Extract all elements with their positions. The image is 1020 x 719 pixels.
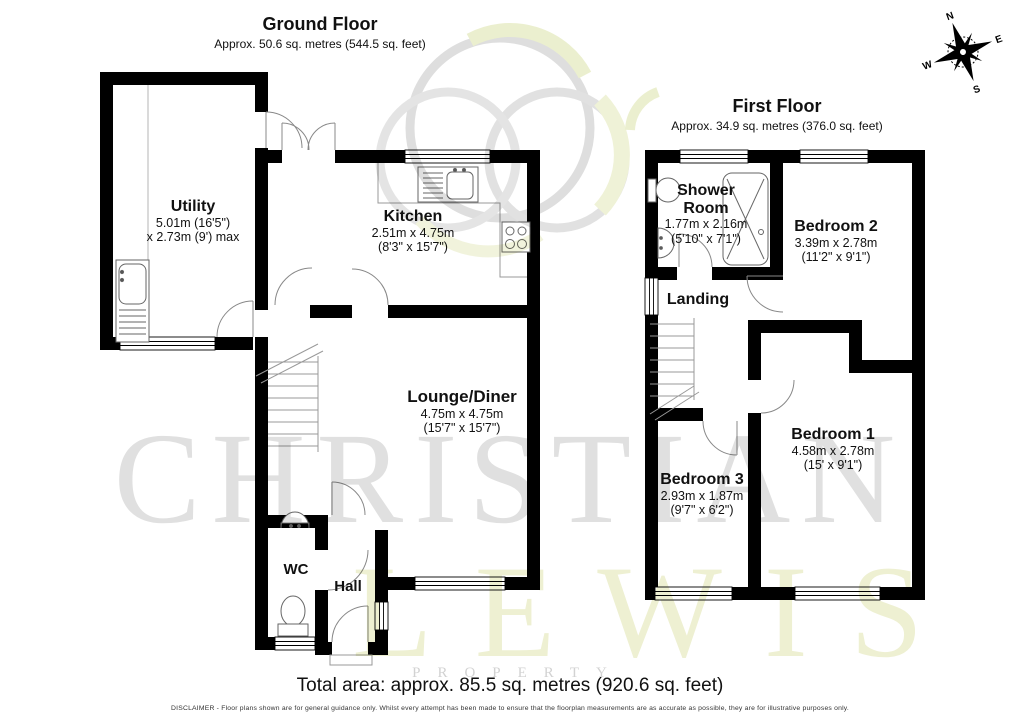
first-floor-title: First Floor — [733, 96, 822, 117]
room-dims: (5'10" x 7'1") — [660, 232, 752, 247]
room-name: Lounge/Diner — [407, 388, 517, 407]
room-label-lounge-diner: Lounge/Diner 4.75m x 4.75m (15'7" x 15'7… — [407, 388, 517, 436]
room-label-landing: Landing — [667, 291, 729, 309]
room-dims: (9'7" x 6'2") — [660, 503, 744, 518]
room-label-bedroom2: Bedroom 2 3.39m x 2.78m (11'2" x 9'1") — [794, 218, 878, 265]
room-label-bedroom3: Bedroom 3 2.93m x 1.87m (9'7" x 6'2") — [660, 471, 744, 518]
room-label-hall: Hall — [334, 578, 362, 595]
room-dims: (11'2" x 9'1") — [794, 250, 878, 265]
room-dims: 4.75m x 4.75m — [407, 407, 517, 422]
room-dims: 3.39m x 2.78m — [794, 236, 878, 251]
room-dims: 2.93m x 1.87m — [660, 489, 744, 504]
compass-w: W — [921, 59, 934, 73]
room-name: Utility — [147, 198, 240, 216]
bedroom3-window — [655, 587, 732, 600]
first-floor-subtitle: Approx. 34.9 sq. metres (376.0 sq. feet) — [671, 119, 882, 133]
shower-window — [680, 150, 748, 163]
bedroom1-window — [795, 587, 880, 600]
room-dims: (15' x 9'1") — [791, 458, 875, 473]
floorplan-page: N E S W Ground Floor Approx. 50.6 sq. me… — [0, 0, 1020, 719]
kitchen-sink — [418, 167, 478, 202]
ground-floor-subtitle: Approx. 50.6 sq. metres (544.5 sq. feet) — [214, 37, 425, 51]
room-name: Kitchen — [372, 208, 455, 226]
compass-e: E — [994, 34, 1004, 47]
disclaimer-text: DISCLAIMER - Floor plans shown are for g… — [171, 705, 849, 712]
ground-floor-title: Ground Floor — [263, 14, 378, 35]
room-name: Bedroom 2 — [794, 218, 878, 236]
kitchen-window — [405, 150, 490, 163]
room-dims: 5.01m (16'5") — [147, 216, 240, 231]
kitchen-hob — [502, 222, 530, 252]
hall-window — [375, 602, 388, 630]
total-area-text: Total area: approx. 85.5 sq. metres (920… — [297, 675, 724, 697]
bedroom2-window — [800, 150, 868, 163]
utility-sink — [116, 85, 149, 342]
lounge-window — [415, 577, 505, 590]
compass-icon: N E S W — [908, 0, 1018, 110]
room-label-shower-room: Shower Room 1.77m x 2.16m (5'10" x 7'1") — [660, 182, 752, 247]
room-label-bedroom1: Bedroom 1 4.58m x 2.78m (15' x 9'1") — [791, 426, 875, 473]
room-dims: x 2.73m (9') max — [147, 230, 240, 245]
wc-window — [275, 637, 315, 650]
room-dims: (15'7" x 15'7") — [407, 421, 517, 436]
room-label-kitchen: Kitchen 2.51m x 4.75m (8'3" x 15'7") — [372, 208, 455, 255]
room-name: Bedroom 1 — [791, 426, 875, 444]
room-name: Bedroom 3 — [660, 471, 744, 489]
compass-s: S — [972, 84, 982, 97]
compass-n: N — [945, 10, 956, 23]
room-label-wc: WC — [284, 561, 309, 578]
room-dims: (8'3" x 15'7") — [372, 240, 455, 255]
room-dims: 2.51m x 4.75m — [372, 226, 455, 241]
porch-step — [330, 655, 372, 665]
room-dims: 4.58m x 2.78m — [791, 444, 875, 459]
room-dims: 1.77m x 2.16m — [660, 217, 752, 232]
floorplan-drawing: N E S W — [0, 0, 1020, 719]
room-name: Shower Room — [660, 182, 752, 217]
wc-toilet — [278, 596, 308, 636]
room-label-utility: Utility 5.01m (16'5") x 2.73m (9') max — [147, 198, 240, 245]
landing-window — [645, 278, 658, 315]
